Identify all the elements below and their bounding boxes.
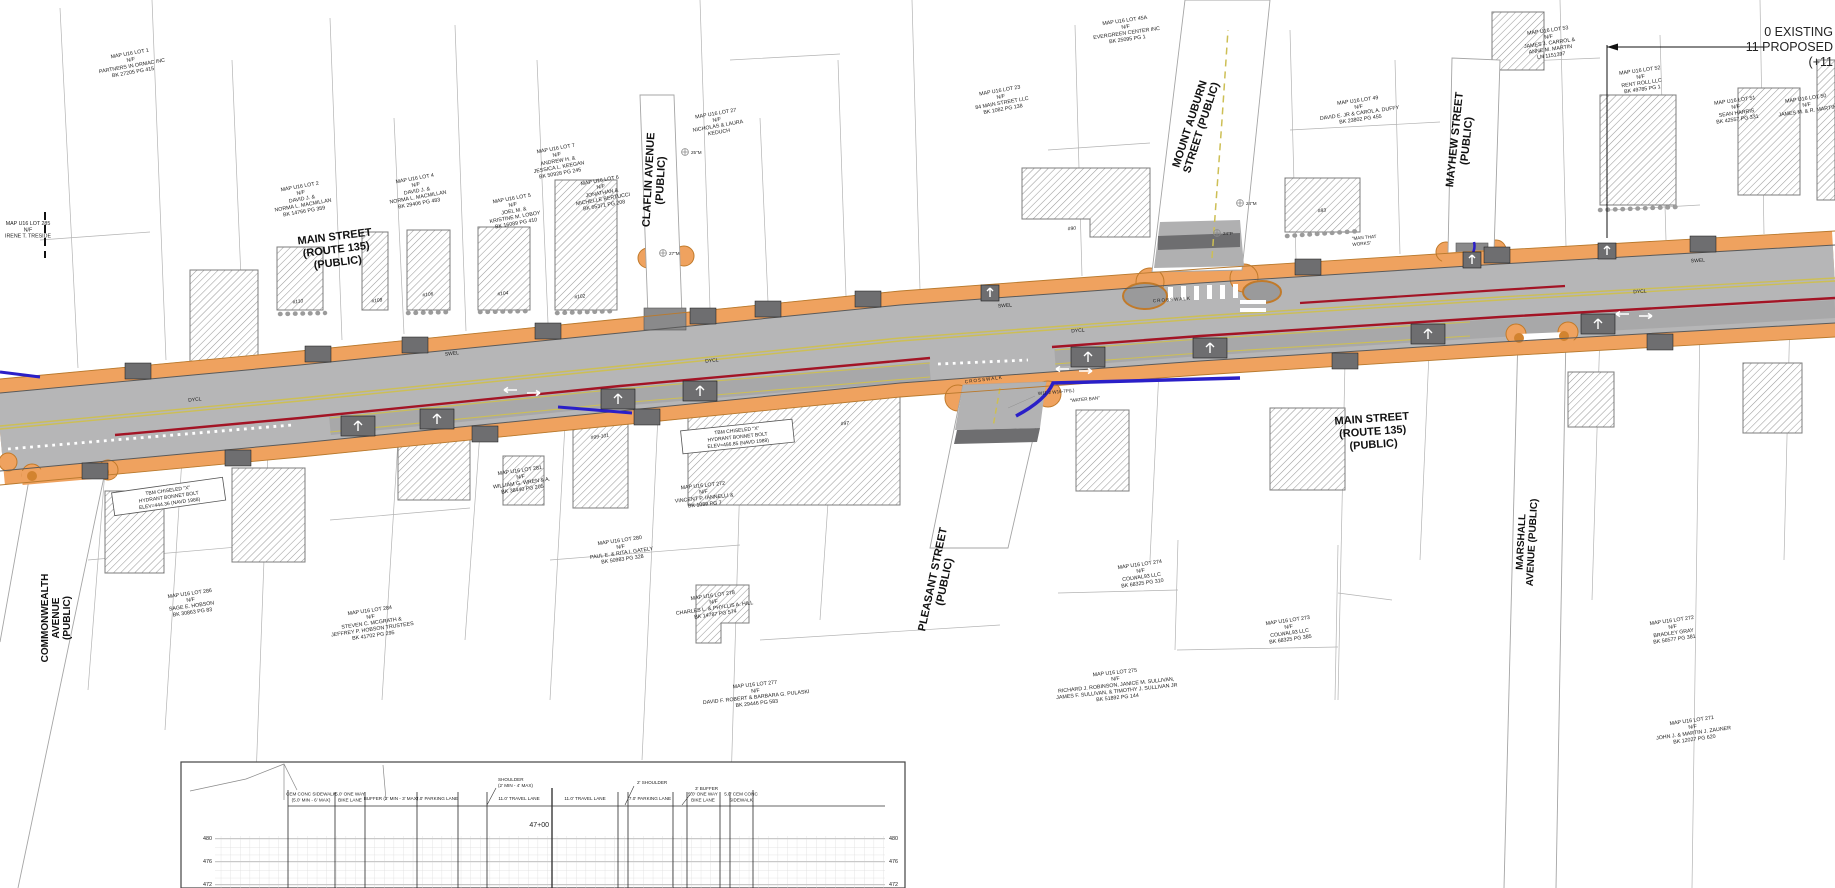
man-that-works-note: "MAN THATWORKS": [1352, 234, 1378, 247]
parcel-label: MAP U16 LOT 275N/FRICHARD J. ROBINSON, J…: [1054, 664, 1179, 708]
tree-tag: 24"P: [1223, 231, 1233, 236]
elev-left-476: 476: [203, 859, 212, 865]
parcel-label: MAP U16 LOT 274N/FCOLWAL93 LLCBK 68325 P…: [1117, 559, 1165, 590]
note-line-delta: (+11: [1809, 55, 1833, 69]
tree-tag: 27"M: [669, 251, 680, 256]
roadway-plan-sheet: 25"M 27"M 24"M 24"P DYCL DYCL DYCL DYCL …: [0, 0, 1835, 888]
parcel-label: MAP U16 LOT 273N/FCOLWAL93 LLCBK 68325 P…: [1265, 615, 1313, 646]
parcel-label: MAP U16 LOT 45AN/FEVERGREEN CENTER INCBK…: [1091, 13, 1161, 47]
parcel-label: MAP U16 LOT 1N/FPARTNERS IN ORMAC INCBK …: [96, 45, 166, 81]
parcel-label: MAP U16 LOT 23N/F84 MAIN STREET LLCBK 10…: [973, 83, 1031, 117]
section-label-travel-right: 11.0' TRAVEL LANE: [564, 796, 605, 801]
parcel-label: MAP U16 LOT 2N/FDAVID J. &NORMA L. MACMI…: [271, 179, 333, 220]
parcel-label: MAP U16 LOT 277N/FDAVID F. ROBERT & BARB…: [701, 676, 810, 712]
parcel-label: MAP U16 LOT 49N/FDAVID E. JR & CAROL A. …: [1318, 92, 1401, 128]
note-line-proposed: 11 PROPOSED: [1746, 40, 1833, 54]
parcel-label: MAP U16 LOT 52N/FRENT ROLL LLCBK 49785 P…: [1619, 65, 1664, 95]
building-number: #83: [1317, 208, 1326, 215]
parcel-label: MAP U16 LOT 271N/FJOHN J. & MARTIN J. ZA…: [1654, 713, 1732, 748]
building-number: #97: [840, 421, 849, 428]
parcel-label: MAP U16 LOT 4N/FDAVID J. &NORMA L. MACMI…: [386, 171, 448, 212]
parcel-label: MAP U16 LOT 7N/FANDREW H. &JESSICA L. KE…: [530, 142, 586, 182]
swel-label: SWEL: [1691, 258, 1706, 265]
tree-tag: 25"M: [691, 150, 702, 155]
section-label-buffer-left: BUFFER (2' MIN - 3' MAX): [364, 796, 419, 801]
parcel-label: MAP U16 LOT 286N/FSAGE E. HOBSONBK 30863…: [167, 588, 216, 619]
section-label-travel-left: 11.0' TRAVEL LANE: [498, 796, 539, 801]
elev-left-472: 472: [203, 882, 212, 888]
elev-right-476: 476: [889, 859, 898, 865]
dycl-label: DYCL: [1071, 328, 1085, 335]
elev-right-472: 472: [889, 882, 898, 888]
parcel-label: MAP U16 LOT 280N/FPAUL E. & RITA I. GATE…: [588, 534, 655, 568]
cross-section-chart: CEM CONC SIDEWALK(5.0' MIN - 6' MAX) 5.0…: [181, 762, 905, 888]
parcel-label: MAP U16 LOT 27N/FNICHOLAS & LAURAKEDUCH: [690, 107, 745, 140]
section-label-shoulder-right: 2' SHOULDER: [637, 780, 668, 785]
benchmark-1: TBM CHISELED "X"HYDRANT BONNET BOLTELEV=…: [112, 477, 226, 515]
section-label-buffer-right: 3' BUFFER: [695, 786, 719, 791]
note-line-existing: 0 EXISTING: [1764, 25, 1833, 39]
parcel-label: MAP U16 LOT 272N/FBRADLEY GRAYBK 56577 P…: [1649, 615, 1697, 646]
street-label-main-east: MAIN STREET(ROUTE 135)(PUBLIC): [1334, 410, 1411, 453]
station-label: 47+00: [529, 822, 549, 829]
swel-label: SWEL: [998, 303, 1013, 310]
section-label-bike-left: 5.0' ONE WAYBIKE LANE: [335, 792, 365, 803]
elev-right-480: 480: [889, 836, 898, 842]
parcel-label: MAP U16 LOT 5N/FJOEL M. &KRISTINE M. LOB…: [486, 192, 543, 232]
section-label-bike-right: 5.0' ONE WAYBIKE LANE: [688, 792, 718, 803]
section-label-parking-left: 7.0' PARKING LANE: [416, 796, 458, 801]
elev-left-480: 480: [203, 836, 212, 842]
dycl-label: DYCL: [1633, 289, 1647, 296]
section-label-parking-right: 7.0' PARKING LANE: [629, 796, 671, 801]
parcel-label: MAP U16 LOT 284N/FSTEVEN C. MCGRATH &JEF…: [328, 602, 415, 645]
water-ban-note: "WATER BAN": [1070, 395, 1101, 403]
section-label-sidewalk-left: CEM CONC SIDEWALK(5.0' MIN - 6' MAX): [286, 792, 337, 803]
tree-tag: 24"M: [1246, 201, 1257, 206]
building-number: #90: [1067, 226, 1076, 233]
